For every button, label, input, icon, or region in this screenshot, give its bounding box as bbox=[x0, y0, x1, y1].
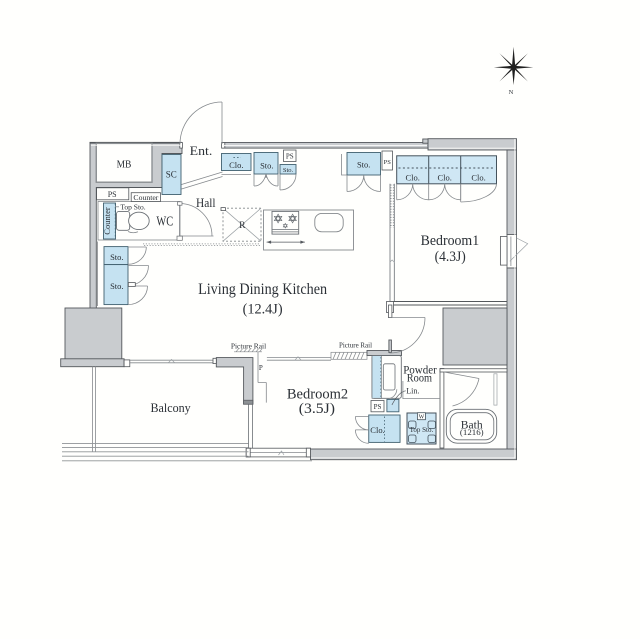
svg-text:Living Dining Kitchen: Living Dining Kitchen bbox=[198, 281, 327, 298]
svg-text:Sto.: Sto. bbox=[110, 252, 123, 262]
svg-text:Room: Room bbox=[407, 373, 432, 385]
svg-text:(12.4J): (12.4J) bbox=[243, 301, 283, 317]
svg-text:Clo.: Clo. bbox=[471, 173, 485, 183]
svg-text:Sto.: Sto. bbox=[283, 167, 294, 174]
svg-text:Ent.: Ent. bbox=[190, 143, 213, 158]
svg-text:Balcony: Balcony bbox=[151, 400, 192, 415]
svg-text:Sto.: Sto. bbox=[357, 160, 370, 170]
svg-text:W: W bbox=[419, 415, 425, 421]
svg-text:Bedroom1: Bedroom1 bbox=[421, 233, 480, 249]
svg-text:PS: PS bbox=[286, 153, 294, 161]
svg-text:R: R bbox=[239, 221, 246, 231]
svg-text:(1216): (1216) bbox=[460, 427, 484, 437]
svg-text:WC: WC bbox=[156, 215, 173, 230]
svg-text:Counter: Counter bbox=[133, 193, 159, 202]
svg-text:PS: PS bbox=[108, 190, 117, 199]
svg-text:(3.5J): (3.5J) bbox=[299, 401, 335, 417]
svg-text:Counter: Counter bbox=[102, 207, 112, 235]
svg-text:Sto.: Sto. bbox=[260, 161, 273, 171]
svg-text:Clo.: Clo. bbox=[370, 425, 384, 435]
svg-text:Clo.: Clo. bbox=[437, 173, 451, 183]
svg-text:Picture Rail: Picture Rail bbox=[339, 341, 372, 350]
svg-text:Picture Rail: Picture Rail bbox=[231, 341, 266, 350]
svg-text:Top Sto.: Top Sto. bbox=[410, 426, 434, 434]
svg-text:Sto.: Sto. bbox=[110, 281, 123, 291]
svg-text:Clo.: Clo. bbox=[229, 160, 243, 170]
svg-text:Top Sto.: Top Sto. bbox=[120, 203, 145, 212]
svg-text:Clo.: Clo. bbox=[405, 173, 419, 183]
svg-text:Hall: Hall bbox=[196, 195, 216, 210]
svg-text:N: N bbox=[509, 89, 514, 96]
svg-text:PS: PS bbox=[384, 159, 392, 166]
svg-text:SC: SC bbox=[166, 170, 177, 180]
svg-text:(4.3J): (4.3J) bbox=[435, 249, 466, 265]
svg-text:Lin.: Lin. bbox=[406, 387, 419, 396]
svg-text:P: P bbox=[259, 364, 263, 372]
svg-text:MB: MB bbox=[117, 158, 132, 170]
svg-text:PS: PS bbox=[374, 403, 382, 411]
